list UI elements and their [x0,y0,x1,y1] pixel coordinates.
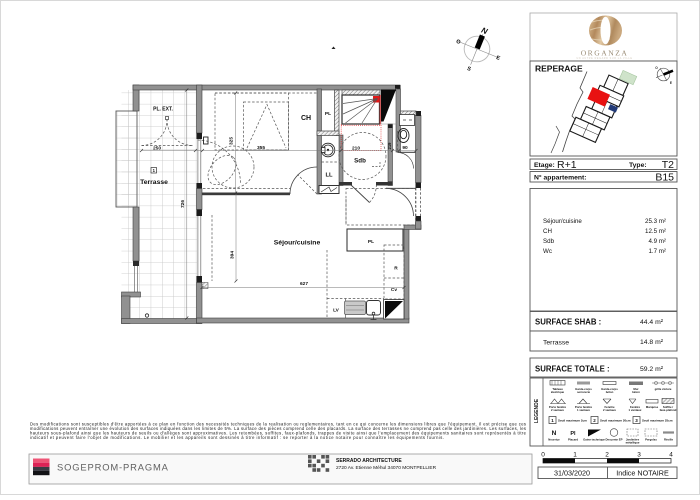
svg-text:2 vantaux: 2 vantaux [603,408,616,412]
svg-text:béton: béton [632,390,640,394]
svg-text:E: E [670,81,672,85]
svg-text:0: 0 [541,452,545,459]
svg-text:44.4 m²: 44.4 m² [640,319,664,326]
svg-text:grille cloture: grille cloture [655,387,672,391]
svg-text:serrurerie: serrurerie [577,390,591,394]
svg-text:355: 355 [257,145,265,151]
svg-text:Nourrice: Nourrice [548,438,560,442]
svg-text:CH: CH [301,115,311,122]
svg-text:25.3 m²: 25.3 m² [645,218,666,225]
svg-text:béton: béton [606,390,614,394]
svg-text:LV: LV [333,308,340,314]
svg-text:2 vantaux: 2 vantaux [551,408,564,412]
svg-text:SURFACE SHAB :: SURFACE SHAB : [535,318,601,327]
svg-text:Seuil maximum 25cm: Seuil maximum 25cm [642,419,673,423]
svg-text:SURFACE TOTALE :: SURFACE TOTALE : [535,365,610,374]
svg-text:Terrasse: Terrasse [140,179,168,186]
svg-text:Descente EP: Descente EP [606,438,623,442]
svg-text:Pergolas: Pergolas [645,438,657,442]
svg-text:métallique: métallique [626,441,640,445]
svg-text:Cv: Cv [391,287,397,293]
svg-text:LL: LL [325,173,333,179]
svg-text:LEGENDE: LEGENDE [534,398,540,423]
svg-text:219: 219 [387,142,392,150]
svg-text:PL: PL [368,239,374,245]
svg-text:1 vantaux: 1 vantaux [577,408,590,412]
svg-text:210: 210 [352,146,360,152]
svg-text:726: 726 [180,200,186,208]
svg-text:250: 250 [153,146,161,152]
svg-text:Placard: Placard [568,438,578,442]
svg-text:4.9 m²: 4.9 m² [648,238,666,245]
svg-text:Sdb: Sdb [354,158,366,165]
svg-text:Sdb: Sdb [543,238,555,245]
svg-text:90: 90 [402,145,408,151]
svg-text:Gaine technique: Gaine technique [583,438,605,442]
svg-text:Seuil maximum 20cm: Seuil maximum 20cm [600,419,631,423]
svg-text:59.2 m²: 59.2 m² [640,366,664,373]
svg-text:1.7 m²: 1.7 m² [648,248,666,255]
svg-text:N° appartement:: N° appartement: [534,174,587,182]
svg-text:N: N [552,430,557,437]
svg-text:B15: B15 [655,172,674,184]
svg-text:31/03/2020: 31/03/2020 [554,469,590,478]
svg-text:Résille: Résille [664,438,673,442]
svg-text:325: 325 [229,137,235,145]
svg-text:Seuil maximum 2cm: Seuil maximum 2cm [558,419,587,423]
svg-text:12.5 m²: 12.5 m² [645,228,666,235]
svg-text:R+1: R+1 [557,159,577,171]
svg-text:3: 3 [637,452,641,459]
svg-text:Séjour/cuisine: Séjour/cuisine [274,240,321,247]
svg-text:R: R [394,266,398,272]
svg-text:Séjour/cuisine: Séjour/cuisine [543,218,582,225]
svg-text:Marquise: Marquise [646,405,659,409]
svg-text:627: 627 [300,281,308,287]
svg-text:2720 Av. Etienne Méhul 34070 M: 2720 Av. Etienne Méhul 34070 MONTPELLIER [336,465,437,471]
svg-text:indicatif et peuvent faire l': indicatif et peuvent faire l'objet de mo… [30,435,444,440]
svg-text:Terrasse: Terrasse [543,340,569,347]
svg-text:14.8 m²: 14.8 m² [640,339,664,346]
svg-text:Wc: Wc [543,248,552,255]
svg-text:1 vantaux: 1 vantaux [629,408,642,412]
svg-text:SERRADO ARCHITECTURE: SERRADO ARCHITECTURE [336,458,402,464]
svg-text:2: 2 [605,452,609,459]
svg-text:REPERAGE: REPERAGE [535,64,583,74]
svg-text:Etage:: Etage: [534,162,555,169]
svg-text:faux-plafond: faux-plafond [660,408,677,412]
svg-text:SOGEPROM-PRAGMA: SOGEPROM-PRAGMA [57,461,169,472]
svg-text:394: 394 [230,251,236,259]
svg-text:1: 1 [573,452,577,459]
svg-text:4: 4 [669,452,673,459]
svg-text:Indice NOTAIRE: Indice NOTAIRE [616,469,669,478]
svg-text:UN AUTRE REGARD SUR LA VILLE: UN AUTRE REGARD SUR LA VILLE [576,57,632,60]
svg-text:Type:: Type: [629,162,647,169]
svg-text:Pl: Pl [570,431,576,437]
svg-text:électrique: électrique [551,390,565,394]
svg-text:CH: CH [543,228,552,235]
svg-text:PL: PL [325,111,331,117]
svg-text:PL. EXT.: PL. EXT. [153,107,173,113]
svg-text:T2: T2 [662,159,674,171]
